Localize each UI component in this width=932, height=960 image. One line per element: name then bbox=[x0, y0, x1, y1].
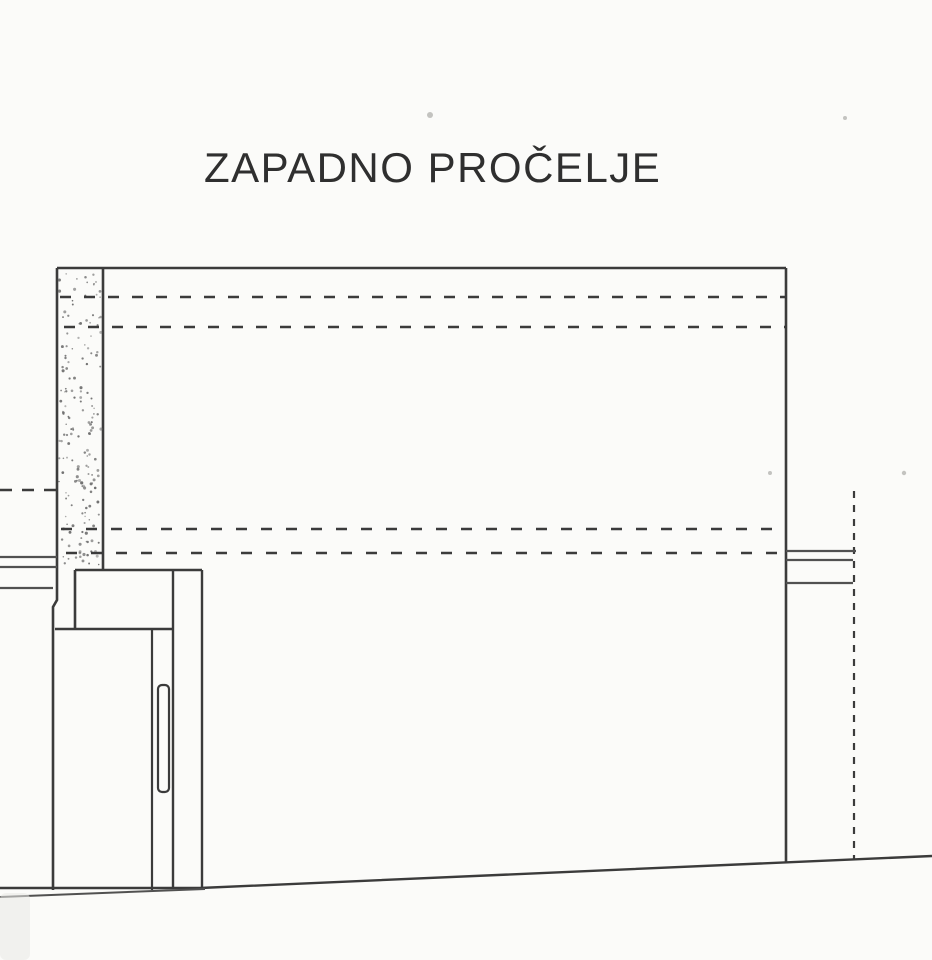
stipple-dot bbox=[89, 423, 92, 426]
stipple-dot bbox=[96, 555, 99, 558]
stipple-dot bbox=[91, 405, 93, 407]
stipple-dot bbox=[93, 413, 95, 415]
stipple-dot bbox=[89, 322, 91, 324]
stipple-dot bbox=[95, 354, 98, 357]
drawing-title: ZAPADNO PROČELJE bbox=[204, 144, 661, 192]
stipple-dot bbox=[77, 465, 80, 468]
stipple-dot bbox=[91, 426, 94, 429]
stipple-dot bbox=[65, 424, 67, 426]
stipple-dot bbox=[91, 539, 94, 542]
stipple-dot bbox=[98, 514, 100, 516]
stipple-dot bbox=[94, 487, 97, 490]
stipple-dot bbox=[96, 501, 99, 504]
stipple-dot bbox=[90, 491, 93, 494]
stipple-dot bbox=[93, 283, 95, 285]
stipple-dot bbox=[91, 474, 93, 476]
stipple-dot bbox=[92, 314, 94, 316]
stipple-dot bbox=[77, 337, 79, 339]
stipple-dot bbox=[72, 348, 74, 350]
stipple-dot bbox=[86, 455, 88, 457]
stipple-dot bbox=[79, 386, 82, 389]
stipple-dot bbox=[86, 541, 88, 543]
stipple-dot bbox=[90, 429, 93, 432]
scanned-drawing-page: ZAPADNO PROČELJE bbox=[0, 0, 932, 960]
scan-speck-3 bbox=[768, 471, 772, 475]
stipple-dot bbox=[85, 465, 87, 467]
stipple-dot bbox=[68, 545, 71, 548]
stipple-dot bbox=[61, 366, 63, 368]
scan-speck-2 bbox=[843, 116, 847, 120]
stipple-dot bbox=[73, 396, 75, 398]
stipple-dot bbox=[79, 322, 82, 325]
stipple-dot bbox=[73, 377, 76, 380]
stipple-dot bbox=[91, 421, 93, 423]
stipple-dot bbox=[63, 556, 65, 558]
stipple-dot bbox=[90, 335, 91, 336]
stipple-dot bbox=[60, 390, 62, 392]
stipple-dot bbox=[80, 481, 83, 484]
stipple-dot bbox=[68, 377, 70, 379]
stipple-dot bbox=[65, 273, 67, 275]
stipple-dot bbox=[99, 296, 101, 298]
stipple-dot bbox=[72, 427, 74, 429]
stipple-dot bbox=[87, 347, 89, 349]
stipple-dot bbox=[58, 278, 61, 281]
stipple-dot bbox=[71, 390, 74, 393]
stipple-dot bbox=[99, 316, 102, 319]
stipple-dot bbox=[58, 290, 61, 293]
stipple-dot bbox=[67, 361, 69, 363]
stipple-dot bbox=[61, 345, 64, 348]
stipple-dot bbox=[86, 392, 88, 394]
stipple-dot bbox=[85, 507, 88, 510]
stipple-dot bbox=[87, 466, 89, 468]
stipple-dot bbox=[68, 558, 70, 560]
stipple-dot bbox=[70, 433, 73, 436]
stipple-dot bbox=[67, 442, 70, 445]
stipple-dot bbox=[76, 480, 78, 482]
stipple-dot bbox=[66, 457, 68, 459]
stipple-dot bbox=[90, 352, 92, 354]
stipple-dot bbox=[98, 564, 100, 566]
stipple-dot bbox=[86, 554, 89, 557]
stipple-dot bbox=[84, 344, 86, 346]
stipple-dot bbox=[99, 331, 102, 334]
stipple-dot bbox=[85, 319, 88, 322]
stipple-dot bbox=[98, 542, 100, 544]
stipple-dot bbox=[91, 417, 93, 419]
stipple-dot bbox=[96, 469, 99, 472]
stipple-dot bbox=[85, 532, 88, 535]
stipple-dot bbox=[66, 345, 68, 347]
stipple-dot bbox=[71, 459, 73, 461]
stipple-dot bbox=[93, 408, 94, 409]
scan-smudge bbox=[0, 893, 30, 960]
stipple-dot bbox=[82, 485, 85, 488]
stipple-dot bbox=[76, 475, 79, 478]
stipple-dot bbox=[94, 458, 97, 461]
stipple-dot bbox=[71, 504, 73, 506]
stipple-dot bbox=[72, 304, 74, 306]
stipple-dot bbox=[61, 471, 64, 474]
stipple-dot bbox=[65, 367, 68, 370]
stipple-dot bbox=[64, 562, 66, 564]
stipple-dot bbox=[82, 553, 85, 556]
stipple-dot bbox=[79, 543, 82, 546]
stipple-dot bbox=[73, 288, 76, 291]
stipple-dot bbox=[88, 563, 90, 565]
stipple-dot bbox=[96, 413, 98, 415]
stipple-dot bbox=[58, 440, 60, 442]
stipple-dot bbox=[79, 396, 82, 399]
stipple-dot bbox=[84, 451, 86, 453]
stipple-dot bbox=[80, 400, 82, 402]
stipple-dot bbox=[88, 505, 91, 508]
stipple-dot bbox=[63, 434, 65, 436]
stipple-dot bbox=[82, 409, 84, 411]
stipple-dot bbox=[82, 559, 85, 562]
stipple-dot bbox=[84, 522, 86, 524]
stipple-dot bbox=[69, 531, 72, 534]
stipple-dot bbox=[63, 310, 66, 313]
stipple-dot bbox=[92, 525, 95, 528]
stipple-dot bbox=[80, 537, 82, 539]
stipple-dot bbox=[62, 411, 64, 413]
stipple-dot bbox=[77, 468, 80, 471]
stipple-dot bbox=[82, 499, 84, 501]
stipple-dot bbox=[63, 458, 65, 460]
stipple-dot bbox=[62, 369, 65, 372]
stipple-dot bbox=[81, 512, 83, 514]
stipple-dot bbox=[84, 516, 86, 518]
stipple-dot bbox=[64, 391, 65, 392]
stipple-dot bbox=[90, 482, 93, 485]
stipple-dot bbox=[60, 440, 62, 442]
stipple-dot bbox=[95, 281, 96, 282]
stipple-dot bbox=[62, 316, 64, 318]
stipple-dot bbox=[86, 282, 88, 284]
stipple-dot bbox=[81, 531, 83, 533]
stipple-dot bbox=[58, 457, 60, 459]
stipple-dot bbox=[84, 276, 87, 279]
stipple-dot bbox=[70, 428, 72, 430]
stipple-dot bbox=[99, 290, 102, 293]
stipple-dot bbox=[90, 397, 92, 399]
stipple-dot bbox=[68, 495, 70, 497]
stipple-dot bbox=[89, 519, 91, 521]
stipple-dot bbox=[75, 556, 77, 558]
stipple-dot bbox=[99, 428, 102, 431]
stipple-dot bbox=[68, 416, 70, 418]
stipple-dot bbox=[64, 357, 66, 359]
stipple-dot bbox=[96, 351, 98, 353]
stipple-dot bbox=[65, 388, 67, 390]
stipple-dot bbox=[59, 400, 62, 403]
stipple-dot bbox=[66, 434, 68, 436]
stipple-dot bbox=[78, 479, 81, 482]
stipple-dot bbox=[65, 390, 67, 392]
stipple-dot bbox=[76, 278, 78, 280]
stipple-dot bbox=[93, 478, 96, 481]
stipple-dot bbox=[92, 274, 94, 276]
stipple-dot bbox=[79, 555, 82, 558]
stipple-dot bbox=[66, 524, 68, 526]
stipple-dot bbox=[99, 366, 101, 368]
stipple-dot bbox=[81, 357, 83, 359]
stipple-dot bbox=[64, 355, 66, 357]
stipple-dot bbox=[61, 538, 63, 540]
stipple-dot bbox=[84, 512, 86, 514]
stipple-dot bbox=[97, 475, 100, 478]
stipple-dot bbox=[58, 481, 59, 482]
stipple-dot bbox=[65, 492, 67, 494]
stipple-dot bbox=[67, 315, 69, 317]
stipple-dot bbox=[65, 498, 67, 500]
stipple-dot bbox=[72, 524, 75, 527]
stipple-dot bbox=[86, 363, 88, 365]
stipple-dot bbox=[89, 433, 91, 435]
stipple-dot bbox=[96, 294, 98, 296]
stipple-dot bbox=[80, 390, 82, 392]
scan-speck-4 bbox=[902, 471, 906, 475]
stipple-dot bbox=[79, 550, 82, 553]
stipple-dot bbox=[66, 332, 68, 334]
scan-speck-1 bbox=[427, 112, 433, 118]
stipple-dot bbox=[88, 453, 90, 455]
stipple-dot bbox=[64, 405, 66, 407]
stipple-dot bbox=[86, 449, 89, 452]
stipple-dot bbox=[72, 300, 74, 302]
stipple-dot bbox=[88, 473, 90, 475]
stipple-dot bbox=[65, 516, 67, 518]
stipple-dot bbox=[77, 435, 79, 437]
